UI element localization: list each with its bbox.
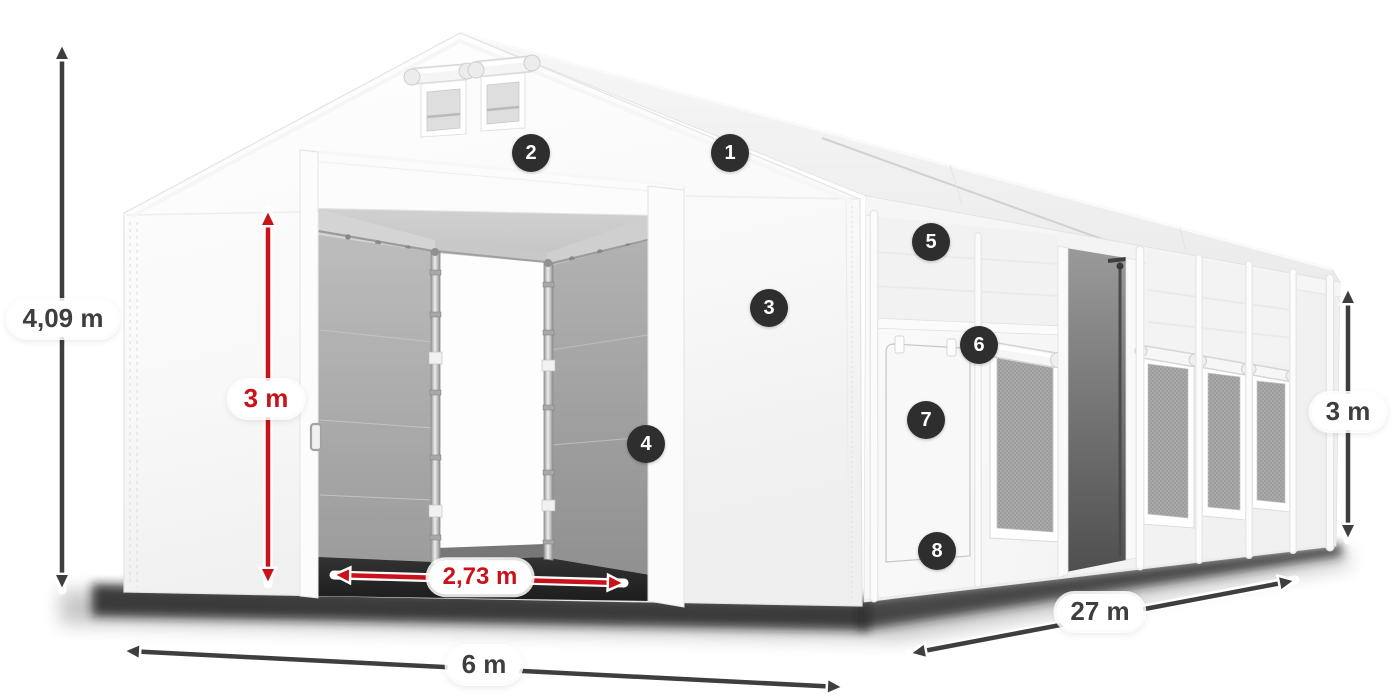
callout-badge-8[interactable]: 8 bbox=[918, 532, 956, 570]
dimension-pill-door-height: 3 m bbox=[230, 381, 303, 417]
callout-badge-3[interactable]: 3 bbox=[750, 289, 788, 327]
side-mesh-window-2 bbox=[1135, 345, 1201, 528]
dimension-pill-total-height: 4,09 m bbox=[9, 301, 118, 337]
dimension-pill-side-height: 3 m bbox=[1312, 394, 1385, 430]
side-door-flap bbox=[886, 336, 970, 562]
callout-badge-7[interactable]: 7 bbox=[907, 401, 945, 439]
side-upper-panel bbox=[872, 216, 1062, 330]
callout-badge-1[interactable]: 1 bbox=[711, 134, 749, 172]
door-handle bbox=[311, 424, 321, 450]
side-doorway-open bbox=[1058, 232, 1144, 578]
callout-badge-6[interactable]: 6 bbox=[960, 326, 998, 364]
side-mesh-window-1 bbox=[979, 341, 1066, 543]
side-mesh-window-3 bbox=[1196, 356, 1253, 521]
product-dimension-diagram: 4,09 m 3 m 2,73 m 6 m 27 m 3 m 1 2 3 4 5… bbox=[0, 0, 1400, 700]
side-mesh-window-4 bbox=[1246, 364, 1296, 512]
dimension-pill-width: 6 m bbox=[448, 647, 521, 683]
dimension-pill-door-width: 2,73 m bbox=[429, 560, 532, 594]
callout-badge-4[interactable]: 4 bbox=[627, 425, 665, 463]
callout-badge-5[interactable]: 5 bbox=[912, 223, 950, 261]
front-door-interior bbox=[318, 209, 650, 601]
callout-badge-2[interactable]: 2 bbox=[512, 134, 550, 172]
tent-illustration bbox=[0, 0, 1400, 700]
dimension-pill-length: 27 m bbox=[1056, 594, 1143, 630]
